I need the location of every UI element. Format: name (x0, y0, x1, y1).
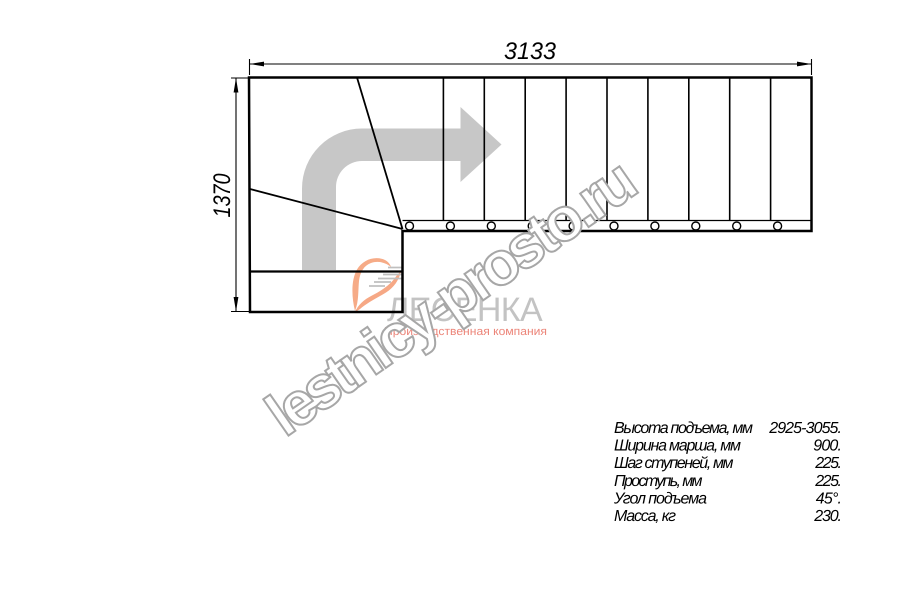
svg-text:Проступь, мм: Проступь, мм (614, 473, 703, 490)
svg-text:3133: 3133 (504, 38, 557, 65)
svg-text:225.: 225. (814, 473, 842, 490)
svg-text:Угол подъема: Угол подъема (613, 490, 707, 507)
svg-text:900.: 900. (813, 438, 842, 455)
svg-text:Масса, кг: Масса, кг (614, 508, 676, 525)
svg-text:225.: 225. (814, 455, 842, 472)
svg-text:2925-3055.: 2925-3055. (768, 420, 842, 437)
svg-text:Шаг ступеней, мм: Шаг ступеней, мм (614, 455, 734, 472)
svg-text:230.: 230. (813, 508, 842, 525)
svg-text:1370: 1370 (209, 173, 236, 218)
svg-text:45°.: 45°. (816, 490, 842, 507)
svg-text:Высота подъема, мм: Высота подъема, мм (614, 420, 753, 437)
svg-text:Ширина марша, мм: Ширина марша, мм (614, 438, 741, 455)
